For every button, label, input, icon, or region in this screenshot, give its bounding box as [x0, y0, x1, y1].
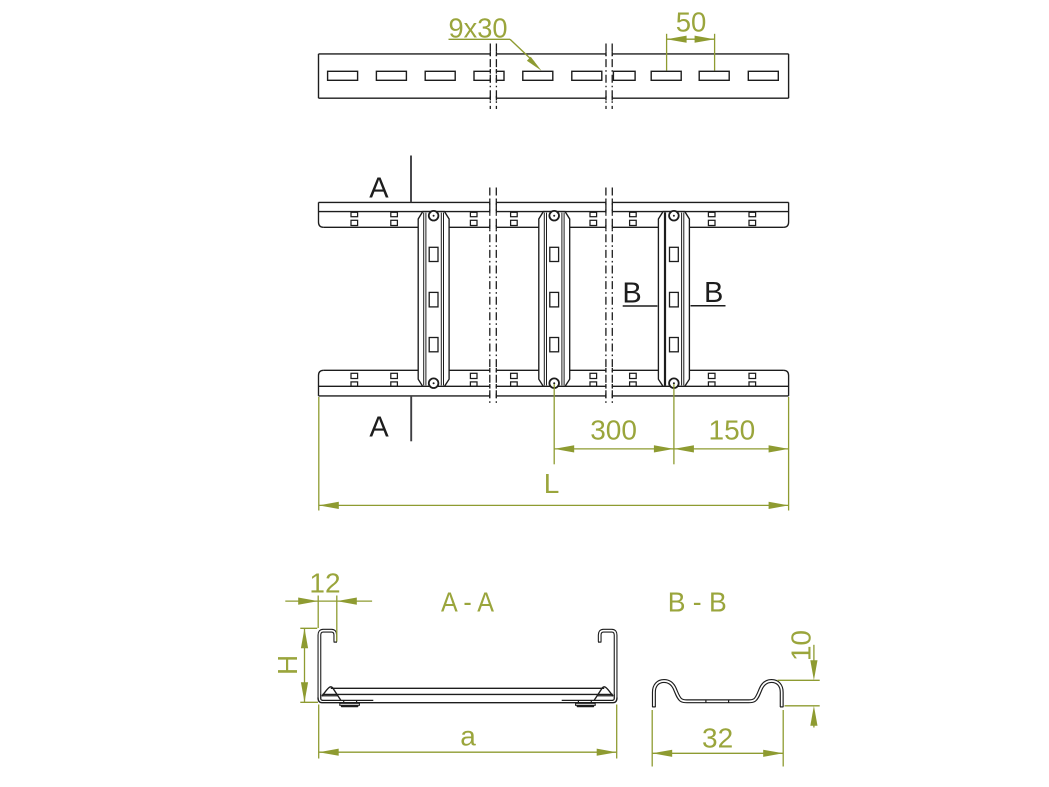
svg-text:B: B	[704, 277, 723, 309]
svg-text:A: A	[369, 172, 389, 204]
svg-text:B - B: B - B	[668, 587, 727, 618]
svg-text:150: 150	[709, 415, 756, 446]
svg-text:A - A: A - A	[441, 587, 494, 618]
svg-text:H: H	[272, 655, 303, 675]
svg-text:B: B	[622, 278, 641, 310]
svg-text:300: 300	[590, 415, 637, 446]
svg-text:10: 10	[786, 630, 817, 661]
svg-text:a: a	[460, 720, 476, 751]
svg-text:L: L	[544, 468, 560, 499]
svg-text:A: A	[369, 412, 389, 444]
svg-text:12: 12	[309, 568, 340, 599]
svg-text:50: 50	[676, 6, 707, 37]
svg-text:32: 32	[702, 723, 733, 754]
